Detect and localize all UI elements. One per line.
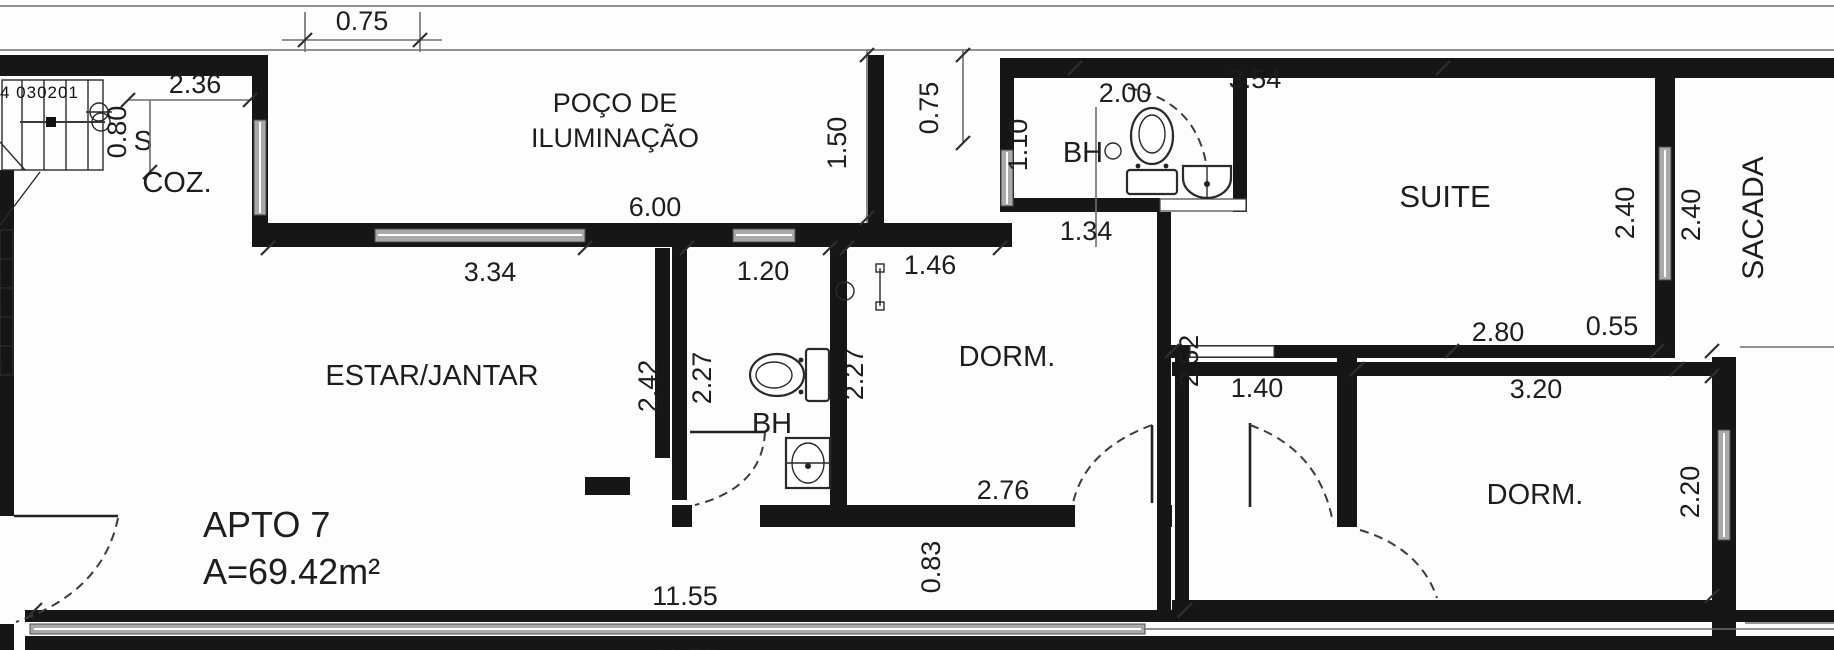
dim-shaft-075: 0.75: [914, 82, 944, 135]
dim-estar-242: 2.42: [633, 360, 663, 413]
living-lightwell-window-icon: [375, 229, 585, 242]
dim-coz-236: 2.36: [169, 69, 222, 99]
toilet-top-icon: [1127, 108, 1177, 194]
dim-dorm-276: 2.76: [977, 475, 1030, 505]
dim-coz-080: 0.80: [102, 106, 132, 159]
dim-total-1155: 11.55: [652, 581, 718, 611]
edge-tread-2: 2: [3, 243, 9, 255]
dim-dorm-227: 2.27: [839, 348, 869, 401]
sink-top-icon: [1183, 166, 1231, 198]
dim-well-600: 6.00: [629, 192, 682, 222]
dorm-right-window-icon: [1718, 430, 1730, 540]
dim-dormr-055: 0.55: [1586, 311, 1639, 341]
dim-dorm-146: 1.46: [904, 250, 957, 280]
floor-plan: 4 030201 S 2 3 4 5 6: [0, 0, 1834, 650]
dorm-right-door-icon: [1360, 530, 1437, 598]
room-labels: COZ. POÇO DE ILUMINAÇÃO ESTAR/JANTAR BH …: [142, 88, 1770, 511]
edge-tread-6: 6: [3, 359, 9, 371]
dim-pass-134: 1.34: [1060, 216, 1113, 246]
dim-sacada-240: 2.40: [1676, 189, 1706, 242]
apartment-name: APTO 7: [203, 504, 330, 545]
room-label-bath-mid: BH: [752, 408, 792, 440]
dim-estar-334: 3.34: [464, 257, 517, 287]
entrance-door-icon: [14, 516, 118, 622]
sink-mid-icon: [786, 438, 830, 488]
stair-tread-numbers: 4 030201: [0, 83, 79, 102]
dim-suite-240: 2.40: [1610, 187, 1640, 240]
suite-door-icon: [1250, 423, 1333, 523]
toilet-mid-icon: [750, 349, 829, 401]
bath-mid-window-icon: [733, 229, 795, 242]
dim-well-150: 1.50: [822, 117, 852, 170]
dim-hall-083: 0.83: [916, 541, 946, 594]
bath-mid-door-icon: [690, 432, 765, 505]
dim-bhtop-110: 1.10: [1003, 119, 1033, 172]
dim-total-1155b: 11.55: [652, 644, 718, 650]
dim-dormr-280: 2.80: [1472, 317, 1525, 347]
dim-dormr-220: 2.20: [1675, 466, 1705, 519]
edge-tread-3: 3: [3, 272, 9, 284]
room-label-lightwell-1: POÇO DE: [553, 88, 678, 118]
room-label-bath-top: BH: [1063, 137, 1103, 169]
room-label-lightwell-2: ILUMINAÇÃO: [531, 122, 699, 153]
room-label-living: ESTAR/JANTAR: [325, 360, 538, 392]
room-label-kitchen: COZ.: [142, 167, 211, 199]
apartment-title: APTO 7 A=69.42m²: [203, 504, 380, 592]
dim-suite-252: 2.52: [1174, 335, 1204, 388]
dim-top-075: 0.75: [336, 6, 389, 36]
edge-tread-5: 5: [3, 330, 9, 342]
room-label-dorm-mid: DORM.: [959, 341, 1056, 373]
stair-start-marker-icon: [46, 117, 56, 127]
suite-balcony-window-icon: [1659, 147, 1671, 280]
room-label-balcony: SACADA: [1737, 156, 1770, 279]
kitchen-lightwell-window-icon: [254, 120, 266, 215]
dorm-mid-door-icon: [1073, 425, 1152, 503]
room-label-dorm-right: DORM.: [1487, 479, 1584, 511]
bottom-facade-window-icon: [30, 624, 1834, 634]
dim-bh-227: 2.27: [687, 352, 717, 405]
edge-tread-4: 4: [3, 301, 9, 313]
dim-bh-120: 1.20: [737, 256, 790, 286]
dim-hall-140: 1.40: [1231, 373, 1284, 403]
floor-plan-canvas: 4 030201 S 2 3 4 5 6: [0, 0, 1834, 650]
room-label-suite: SUITE: [1399, 179, 1490, 214]
apartment-area: A=69.42m²: [203, 551, 380, 592]
bath-top-drain-icon: [1105, 143, 1121, 159]
dim-dormr-320: 3.20: [1510, 374, 1563, 404]
dim-suite-354: 3.54: [1229, 64, 1282, 94]
dim-bhtop-200: 2.00: [1099, 78, 1152, 108]
